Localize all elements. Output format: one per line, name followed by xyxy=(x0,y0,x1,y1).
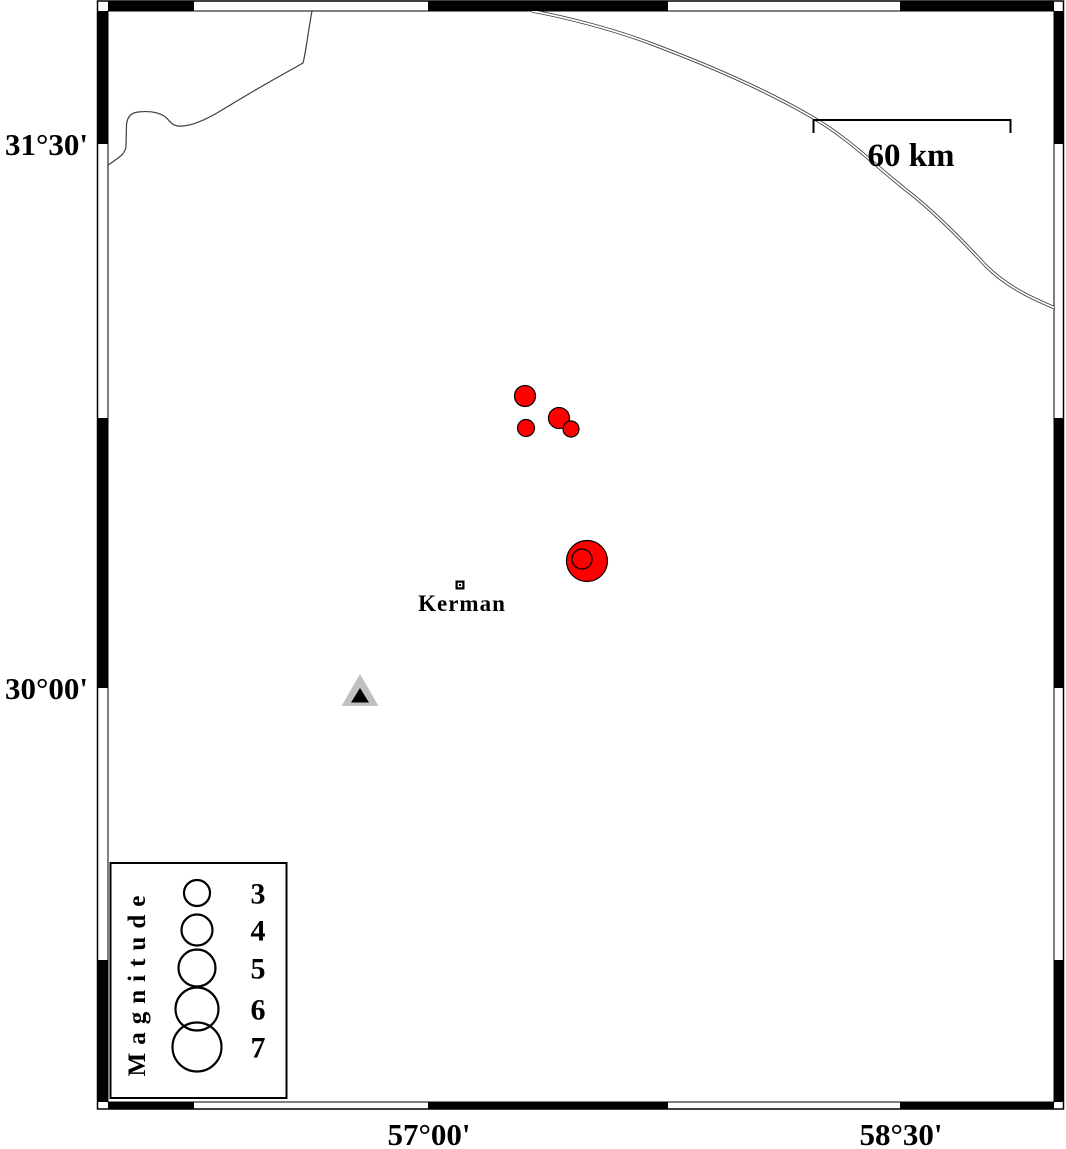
frame-tick-segment xyxy=(108,2,194,12)
city-label: Kerman xyxy=(418,591,506,616)
epicenter-marker xyxy=(563,421,579,437)
frame-tick-segment xyxy=(108,1102,194,1110)
lat-label-top: 31°30' xyxy=(5,127,88,162)
legend-mag-value: 7 xyxy=(251,1032,266,1065)
city-square-center xyxy=(459,584,461,586)
epicenter-marker xyxy=(518,420,535,437)
legend-title: Magnitude xyxy=(124,888,151,1077)
epicenter-marker xyxy=(515,386,536,407)
frame-tick-segment xyxy=(98,418,108,688)
lon-label-right: 58°30' xyxy=(859,1117,942,1149)
frame-tick-segment xyxy=(1055,418,1064,688)
scale-bar-label: 60 km xyxy=(867,138,954,174)
frame-tick-segment xyxy=(1055,960,1064,1102)
frame-tick-segment xyxy=(98,960,108,1102)
frame-tick-segment xyxy=(428,2,668,12)
lat-label-bottom: 30°00' xyxy=(5,671,88,706)
legend-mag-value: 5 xyxy=(251,953,266,986)
city-square-icon xyxy=(456,581,465,590)
legend-mag-value: 6 xyxy=(251,994,266,1027)
magnitude-legend: Magnitude 34567 xyxy=(111,863,287,1098)
lon-label-left: 57°00' xyxy=(387,1117,470,1149)
frame-tick-segment xyxy=(900,1102,1054,1110)
legend-mag-value: 3 xyxy=(251,878,266,911)
frame-tick-segment xyxy=(1055,11,1064,144)
frame-tick-segment xyxy=(900,2,1054,12)
legend-mag-value: 4 xyxy=(251,915,266,948)
frame-tick-segment xyxy=(428,1102,668,1110)
frame-tick-segment xyxy=(98,11,108,144)
seismicity-map-figure: 60 km Kerman Magnitude 34567 31°30' 30°0… xyxy=(0,0,1066,1149)
